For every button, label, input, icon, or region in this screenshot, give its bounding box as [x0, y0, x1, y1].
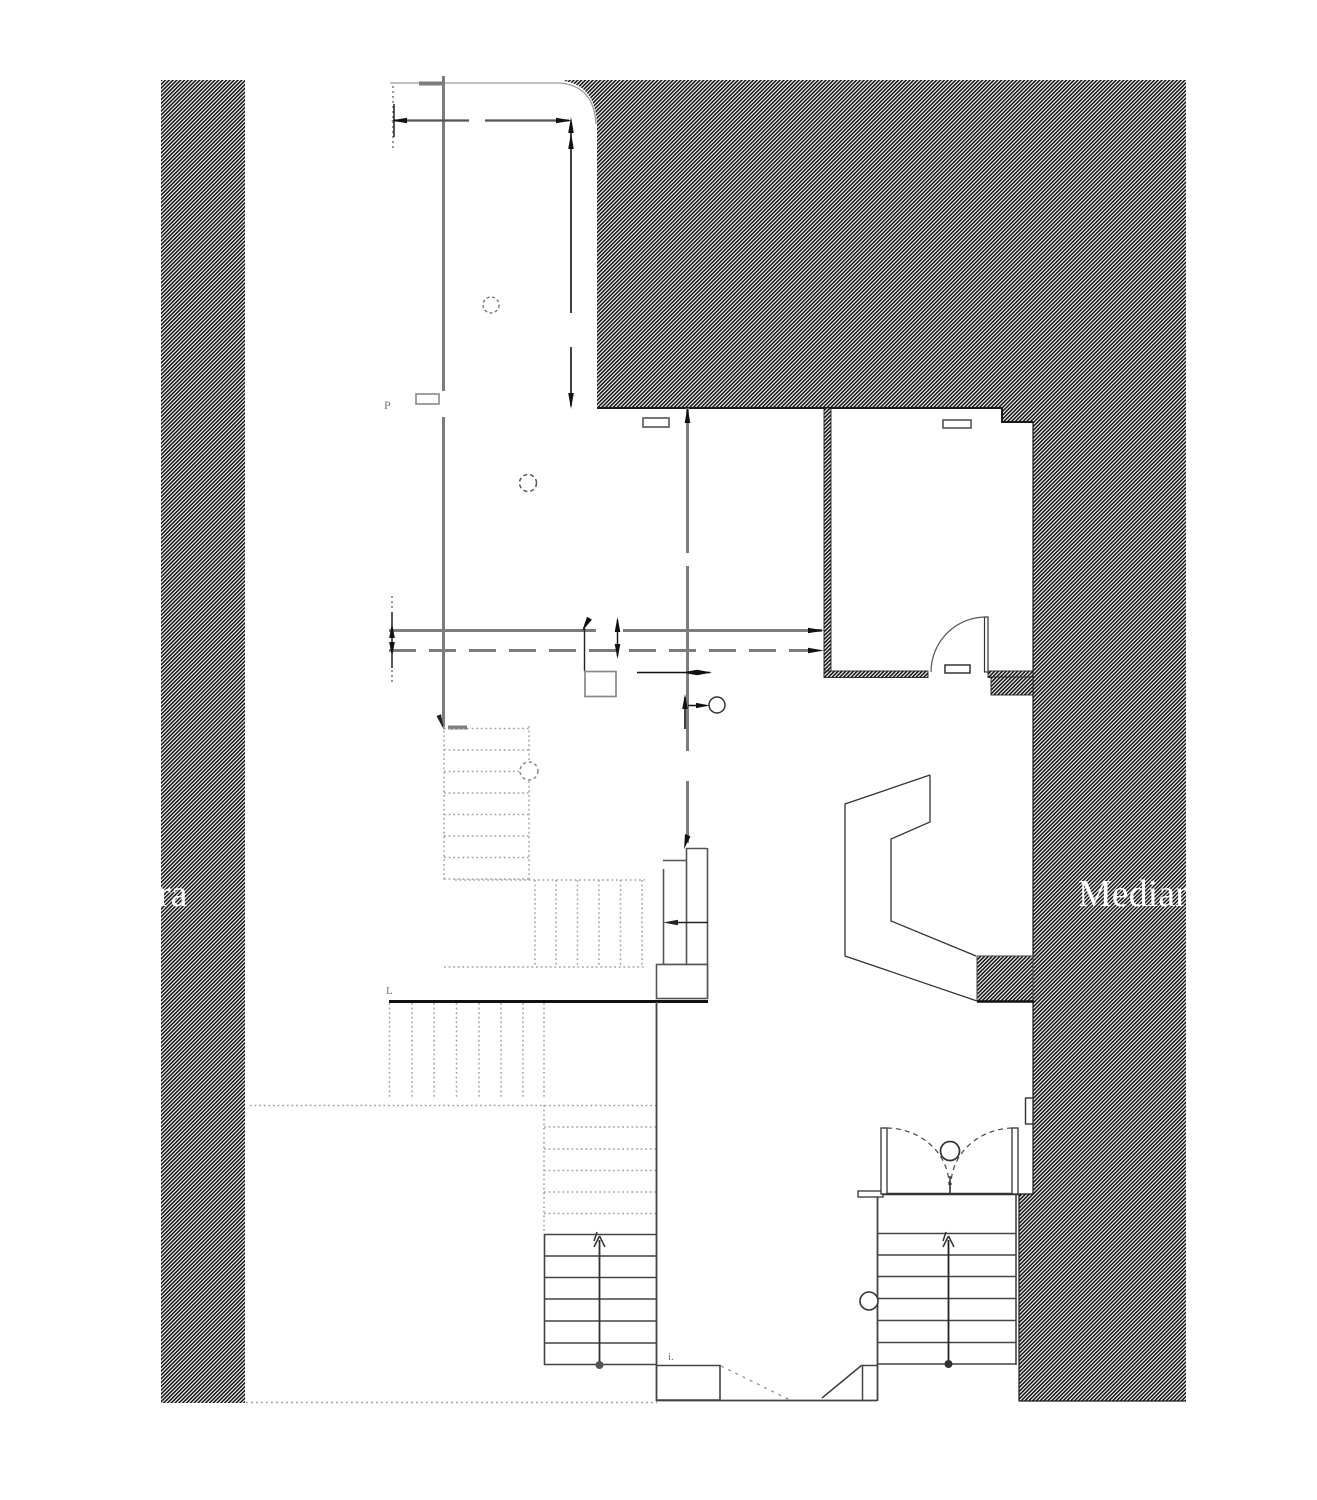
svg-text:i.: i.	[668, 1351, 674, 1363]
svg-text:Medianera: Medianera	[1078, 873, 1241, 915]
svg-text:ra: ra	[158, 873, 188, 915]
svg-text:L: L	[386, 985, 393, 997]
svg-text:P: P	[384, 398, 391, 412]
